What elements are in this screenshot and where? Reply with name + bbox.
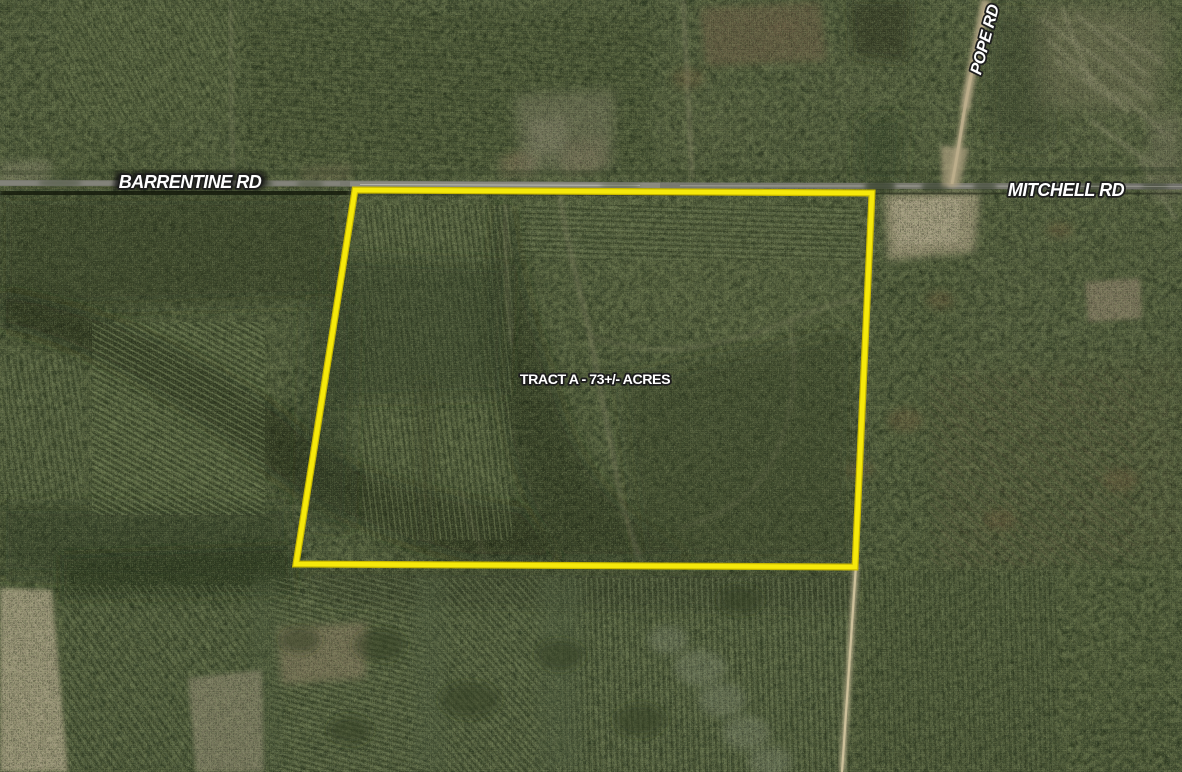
svg-text:MITCHELL RD: MITCHELL RD	[1008, 180, 1125, 200]
svg-text:TRACT A - 73+/- ACRES: TRACT A - 73+/- ACRES	[520, 372, 670, 388]
svg-text:BARRENTINE RD: BARRENTINE RD	[119, 172, 262, 192]
